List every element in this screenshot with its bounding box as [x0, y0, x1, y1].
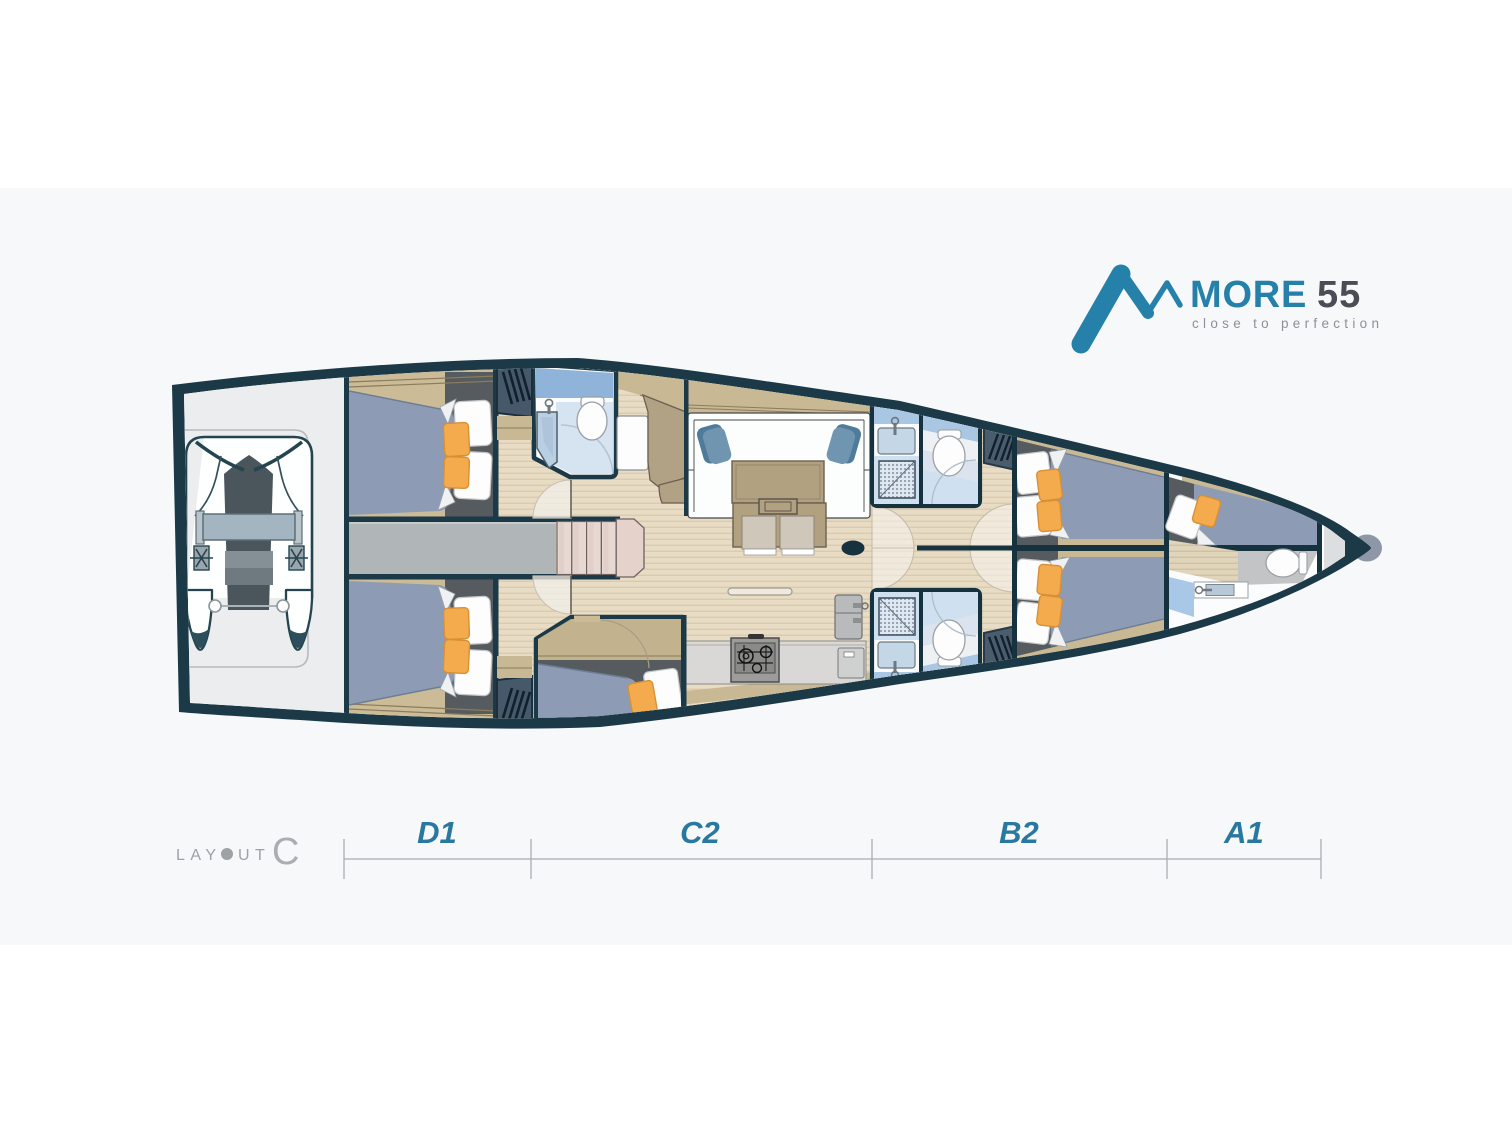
svg-text:C: C — [272, 831, 299, 873]
svg-text:close to perfection: close to perfection — [1192, 316, 1383, 331]
svg-text:LAY: LAY — [176, 847, 222, 864]
svg-text:UT: UT — [238, 847, 270, 864]
svg-text:MORE: MORE — [1190, 274, 1307, 316]
svg-text:C2: C2 — [680, 815, 720, 850]
svg-text:B2: B2 — [999, 815, 1039, 850]
svg-text:55: 55 — [1317, 274, 1361, 316]
svg-text:A1: A1 — [1223, 815, 1264, 850]
svg-text:D1: D1 — [417, 815, 457, 850]
